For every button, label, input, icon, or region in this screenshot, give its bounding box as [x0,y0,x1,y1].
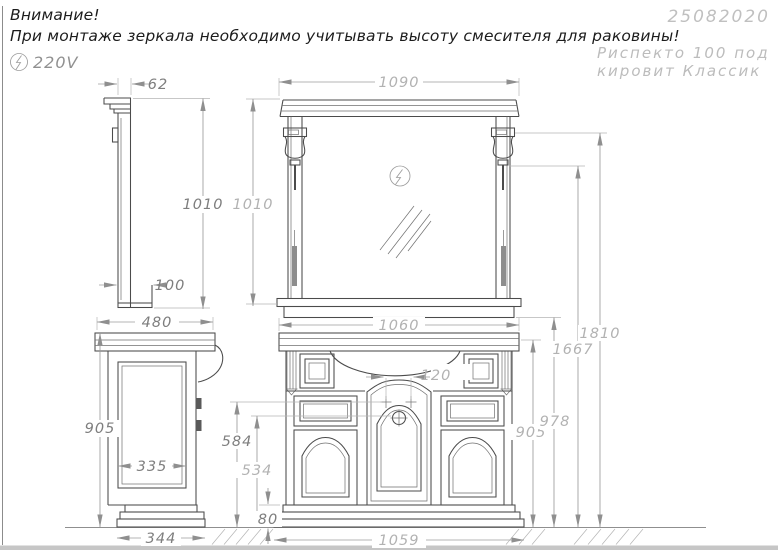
svg-text:905: 905 [85,421,116,437]
dim-plinth-height: 80 [254,488,282,544]
svg-text:335: 335 [137,459,168,475]
door-left [294,430,357,505]
drawing-page: Внимание! При монтаже зеркала необходимо… [0,0,778,550]
technical-drawing: Внимание! При монтаже зеркала необходимо… [0,0,778,550]
cabinet-side-view: 480 905 335 344 [80,314,223,547]
electric-icon-mirror [390,166,410,186]
svg-text:1060: 1060 [379,318,420,334]
drain-symbol [391,410,408,427]
svg-text:344: 344 [146,531,177,547]
door-right [441,430,504,505]
ground-hatch [212,529,643,545]
model-name-line2: кировит Классик [597,62,761,80]
front-pilaster-left [286,352,298,396]
voltage-label: 220V [33,53,79,72]
pilaster-bracket [501,246,506,286]
mirror-side-view: 62 1010 100 [98,77,224,309]
header: Внимание! При монтаже зеркала необходимо… [10,6,770,80]
dim-drain-height: 534 [236,416,391,527]
door-middle [367,380,431,505]
svg-text:120: 120 [421,368,452,384]
svg-text:480: 480 [142,315,173,331]
mirror-front-view: 1090 [232,74,607,318]
svg-text:100: 100 [155,278,186,294]
plinth-front [274,505,524,527]
dim-faucet-spacing: 120 [366,364,471,399]
warning-text: При монтаже зеркала необходимо учитывать… [10,27,680,45]
dim-countertop-height: 905 [510,340,552,527]
model-name-line1: Риспекто 100 под [597,44,770,62]
dim-base-depth: 344 [117,530,205,547]
dim-cabinet-height-side: 905 [80,333,120,527]
svg-text:1810: 1810 [580,326,621,342]
plinth-side [117,519,205,527]
svg-text:80: 80 [258,512,278,528]
dim-cabinet-width: 1060 [279,317,519,334]
small-drawer-left [300,354,334,388]
dim-lamp-bottom-height: 1667 [551,166,595,527]
countertop [279,333,519,351]
dim-cabinet-depth: 480 [97,314,213,331]
electric-icon [11,54,28,71]
sconce-lamp-left [284,128,307,190]
height-dimensions: 905 978 1667 1810 [510,133,622,527]
pilaster-bracket [292,246,297,286]
door-handle [196,420,202,431]
dim-side-panel-width: 335 [118,458,186,475]
front-pilaster-right [501,352,513,396]
dim-crown-depth: 62 [98,77,168,95]
svg-text:1667: 1667 [553,342,594,358]
dim-shelf-depth: 100 [99,278,185,294]
mirror-shelf-side [118,303,152,308]
svg-text:62: 62 [148,77,168,93]
mirror-shelf [277,299,521,307]
drawer-left [294,396,357,426]
svg-text:1010: 1010 [183,197,224,213]
svg-text:1059: 1059 [379,533,420,549]
svg-text:1010: 1010 [233,197,274,213]
svg-text:1090: 1090 [379,75,420,91]
cabinet-front-view: 1060 [216,317,524,549]
dim-mirror-width: 1090 [279,74,519,96]
dim-mirror-height-front: 1010 [232,99,280,306]
mirror-bottom-rail [284,307,514,318]
drawer-right [441,396,504,426]
dim-lamp-top-height: 1810 [578,133,622,527]
mirror-crown [280,100,519,117]
mirror-pilasters [288,117,510,300]
sconce-lamp-right [492,128,515,190]
countertop-side [95,333,215,351]
lamp-side-profile [113,128,119,142]
mirror-glass-hatch [380,206,431,258]
svg-text:978: 978 [540,414,571,430]
door-handle [196,398,202,409]
warning-title: Внимание! [10,6,100,24]
doc-number: 25082020 [667,7,770,27]
svg-text:534: 534 [242,463,273,479]
svg-text:584: 584 [222,434,253,450]
